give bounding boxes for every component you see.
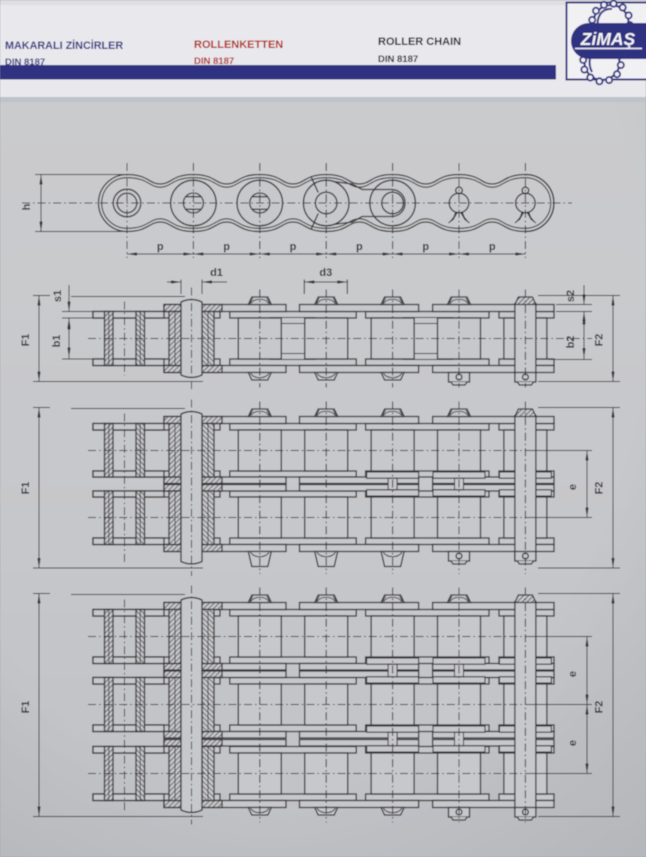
- svg-text:e: e: [567, 671, 579, 677]
- svg-text:F1: F1: [20, 701, 32, 714]
- svg-text:ZiMAŞ: ZiMAŞ: [580, 29, 636, 49]
- svg-text:MAKARALI ZİNCİRLER: MAKARALI ZİNCİRLER: [5, 39, 123, 52]
- svg-text:DIN 8187: DIN 8187: [378, 54, 418, 65]
- svg-text:p: p: [290, 241, 297, 253]
- svg-text:d3: d3: [319, 267, 332, 279]
- svg-text:s2: s2: [565, 290, 577, 302]
- svg-text:h: h: [21, 203, 33, 210]
- svg-text:p: p: [157, 241, 164, 253]
- svg-text:F2: F2: [594, 701, 606, 714]
- svg-text:F2: F2: [594, 334, 606, 347]
- svg-text:ROLLER CHAIN: ROLLER CHAIN: [378, 36, 461, 48]
- svg-text:p: p: [356, 241, 363, 253]
- svg-text:d1: d1: [210, 267, 223, 279]
- svg-text:F1: F1: [20, 334, 32, 347]
- svg-text:p: p: [489, 241, 496, 253]
- svg-text:b2: b2: [565, 336, 577, 349]
- svg-text:p: p: [223, 241, 230, 253]
- svg-text:ROLLENKETTEN: ROLLENKETTEN: [194, 39, 283, 51]
- svg-text:p: p: [422, 241, 429, 253]
- svg-text:e: e: [567, 740, 579, 746]
- svg-text:F1: F1: [20, 482, 32, 495]
- svg-text:b1: b1: [51, 335, 63, 348]
- svg-text:F2: F2: [594, 482, 606, 495]
- svg-text:s1: s1: [52, 290, 64, 302]
- svg-text:e: e: [567, 484, 579, 490]
